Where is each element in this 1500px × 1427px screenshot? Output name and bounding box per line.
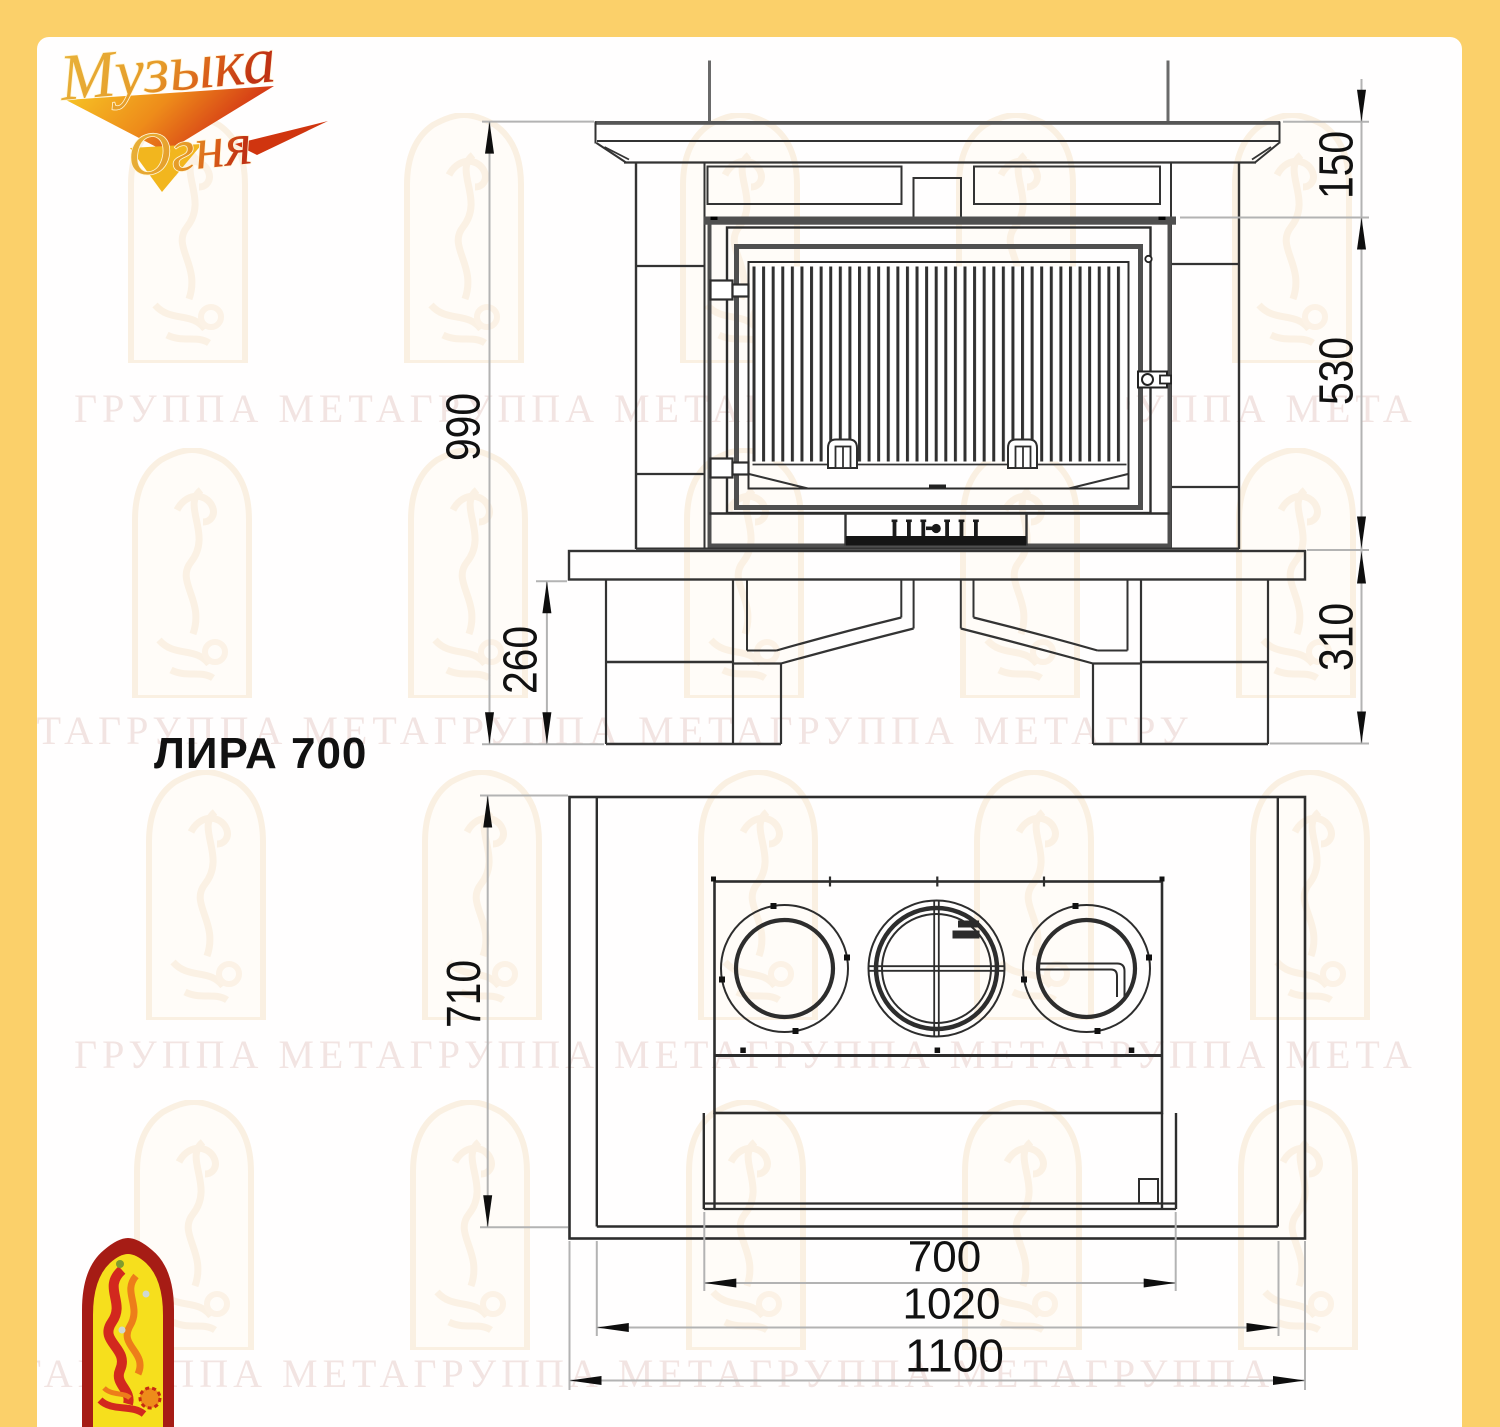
svg-text:Огня: Огня bbox=[124, 110, 255, 189]
svg-text:700: 700 bbox=[908, 1233, 981, 1282]
svg-text:310: 310 bbox=[1310, 603, 1363, 671]
svg-text:710: 710 bbox=[438, 960, 491, 1028]
svg-text:990: 990 bbox=[437, 393, 490, 461]
svg-text:ЛИРА 700: ЛИРА 700 bbox=[154, 729, 367, 778]
svg-text:ГРУППА МЕТАГРУППА МЕТАГРУППА М: ГРУППА МЕТАГРУППА МЕТАГРУППА МЕТАГРУППА … bbox=[74, 386, 1417, 431]
svg-text:ГРУППА МЕТАГРУППА МЕТАГРУППА М: ГРУППА МЕТАГРУППА МЕТАГРУППА МЕТАГРУППА … bbox=[0, 1351, 1274, 1396]
svg-text:530: 530 bbox=[1310, 337, 1363, 405]
svg-text:1100: 1100 bbox=[905, 1330, 1004, 1382]
svg-text:1020: 1020 bbox=[903, 1280, 1001, 1329]
svg-text:150: 150 bbox=[1310, 131, 1363, 199]
svg-text:260: 260 bbox=[494, 626, 547, 694]
